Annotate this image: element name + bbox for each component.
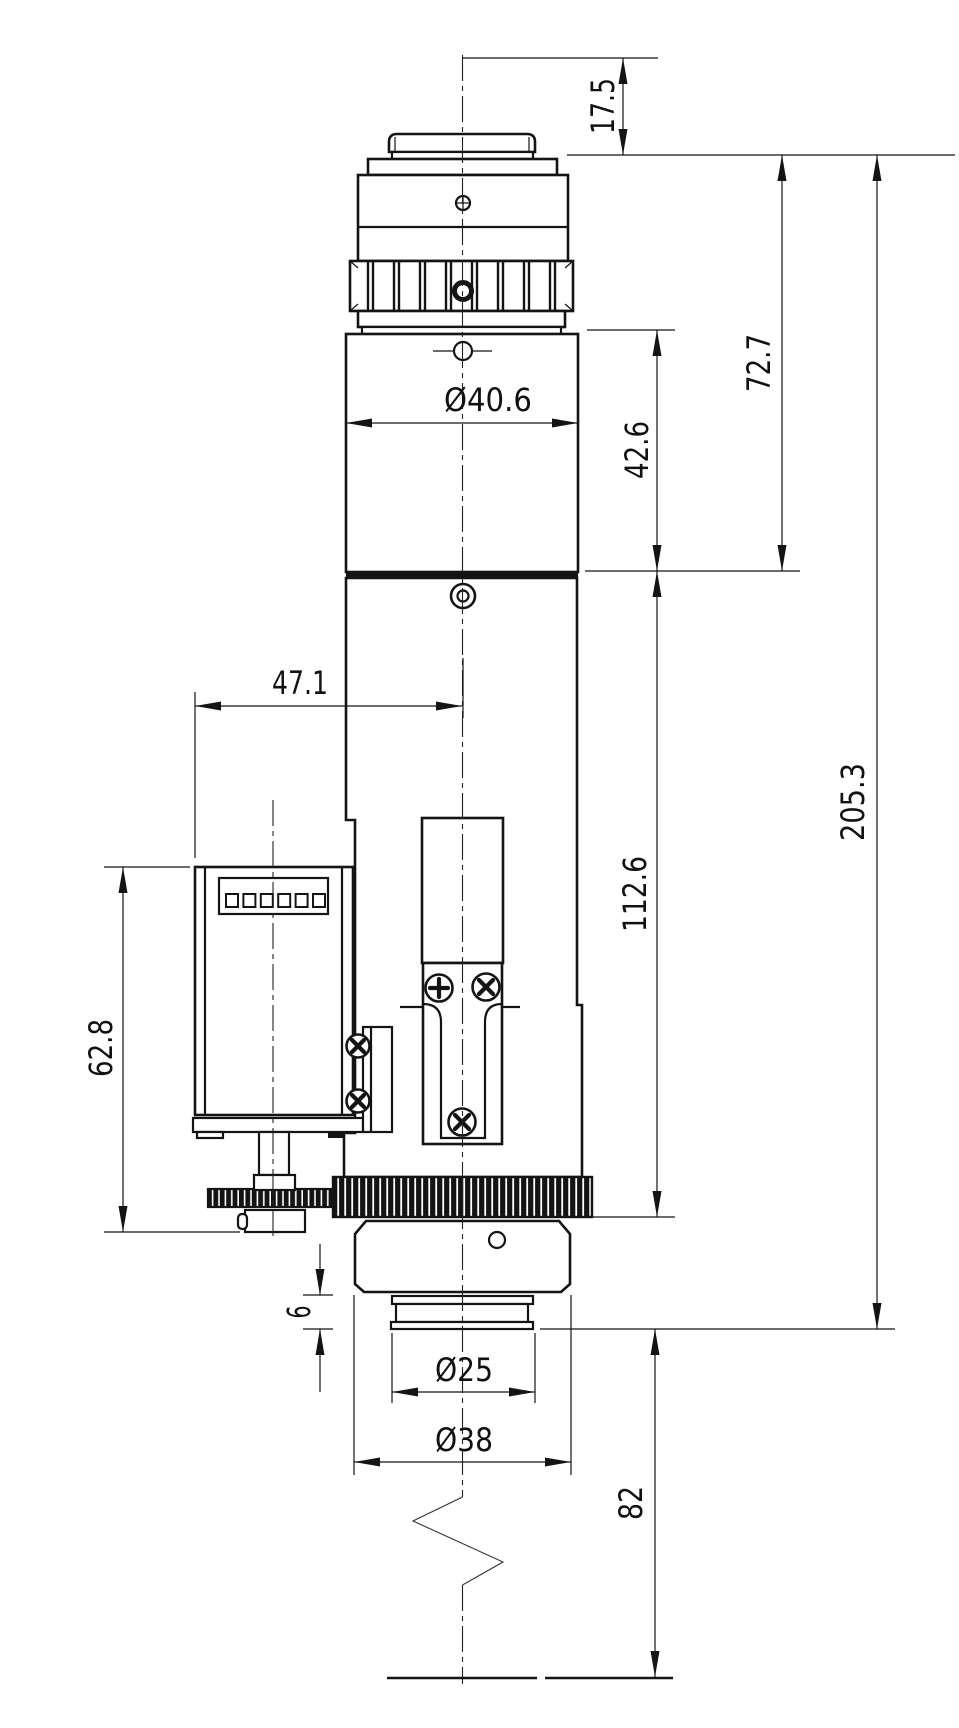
- bracket-screw-bottom: [347, 1090, 370, 1113]
- dim-overall-length: 205.3: [834, 763, 872, 841]
- dim-top-offset: 17.5: [584, 78, 622, 134]
- motor-foot-left: [197, 1132, 223, 1138]
- dim-spigot-diameter: Ø25: [435, 1351, 493, 1389]
- hub-tab: [238, 1214, 247, 1229]
- upper-tube: [346, 334, 578, 572]
- ring-band-1: [358, 311, 565, 327]
- drawing-sheet: 17.5 72.7 42.6 Ø40.6 47.1 112.6 62.8 205…: [0, 0, 959, 1728]
- technical-drawing: 17.5 72.7 42.6 Ø40.6 47.1 112.6 62.8 205…: [0, 0, 959, 1728]
- dim-lower-body-length: 112.6: [616, 856, 654, 932]
- gear-hub: [245, 1210, 305, 1232]
- motor-foot-right: [328, 1132, 344, 1138]
- bracket-screw-top: [347, 1035, 370, 1058]
- dim-motor-axis-offset: 47.1: [272, 664, 328, 702]
- dim-knurl-section-length: 42.6: [618, 421, 656, 479]
- dim-spigot-step-height: 6: [280, 1306, 318, 1319]
- drive-gear: [208, 1189, 332, 1207]
- dim-mount-diameter: Ø38: [435, 1421, 493, 1459]
- shaft-coupler: [254, 1175, 295, 1190]
- motor-mount-plate: [193, 1118, 363, 1132]
- slider-screw-right: [473, 974, 500, 1001]
- slider-screw-left: [426, 975, 453, 1002]
- adapter-hole: [489, 1232, 505, 1248]
- break-line: [413, 1497, 503, 1585]
- dim-below-mount-length: 82: [612, 1486, 650, 1520]
- motor-shaft: [259, 1132, 289, 1175]
- dim-upper-body-length: 72.7: [740, 334, 778, 392]
- dim-motor-assembly-height: 62.8: [82, 1019, 120, 1077]
- dim-body-diameter: Ø40.6: [444, 381, 532, 419]
